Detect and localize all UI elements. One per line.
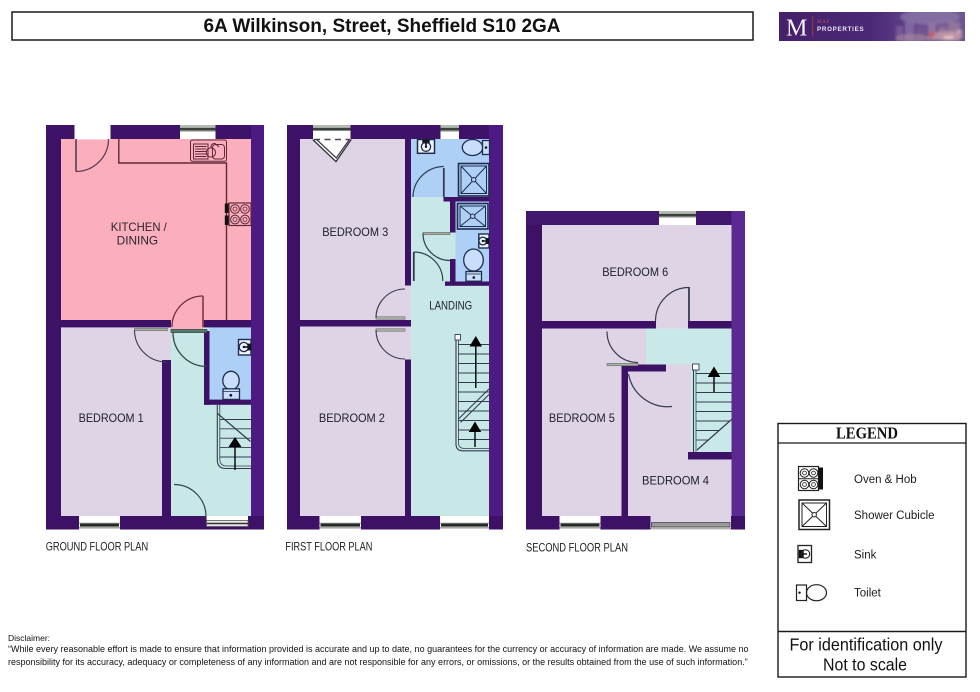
svg-text:responsibility for its accurac: responsibility for its accuracy, adequac… — [8, 657, 748, 667]
svg-text:BEDROOM 1: BEDROOM 1 — [79, 412, 144, 425]
svg-text:Sink: Sink — [854, 550, 877, 562]
svg-text:For identification only: For identification only — [790, 635, 943, 655]
svg-text:6A Wilkinson, Street, Sheffiel: 6A Wilkinson, Street, Sheffield S10 2GA — [203, 16, 560, 37]
svg-text:“While every reasonable effort: “While every reasonable effort is made t… — [8, 644, 749, 654]
svg-text:Shower Cubicle: Shower Cubicle — [854, 510, 935, 522]
svg-text:SECOND FLOOR PLAN: SECOND FLOOR PLAN — [526, 540, 628, 554]
svg-text:KITCHEN /: KITCHEN / — [111, 221, 168, 234]
svg-text:LANDING: LANDING — [429, 299, 472, 312]
svg-text:BEDROOM 6: BEDROOM 6 — [602, 266, 668, 279]
svg-text:BEDROOM 2: BEDROOM 2 — [319, 412, 385, 425]
svg-text:BEDROOM 4: BEDROOM 4 — [642, 475, 710, 488]
svg-text:Oven & Hob: Oven & Hob — [854, 474, 917, 486]
svg-text:Toilet: Toilet — [854, 588, 882, 600]
svg-text:Not to scale: Not to scale — [823, 655, 907, 675]
svg-text:BEDROOM 5: BEDROOM 5 — [549, 412, 615, 425]
svg-text:PROPERTIES: PROPERTIES — [817, 26, 864, 33]
svg-text:FIRST FLOOR PLAN: FIRST FLOOR PLAN — [285, 539, 372, 553]
svg-text:Disclaimer:: Disclaimer: — [8, 633, 50, 643]
svg-text:MAF: MAF — [817, 20, 830, 25]
svg-text:M: M — [786, 16, 807, 42]
svg-text:DINING: DINING — [117, 235, 159, 248]
svg-text:BEDROOM 3: BEDROOM 3 — [322, 226, 388, 239]
svg-text:LEGEND: LEGEND — [836, 424, 898, 443]
svg-text:GROUND FLOOR PLAN: GROUND FLOOR PLAN — [46, 539, 149, 553]
